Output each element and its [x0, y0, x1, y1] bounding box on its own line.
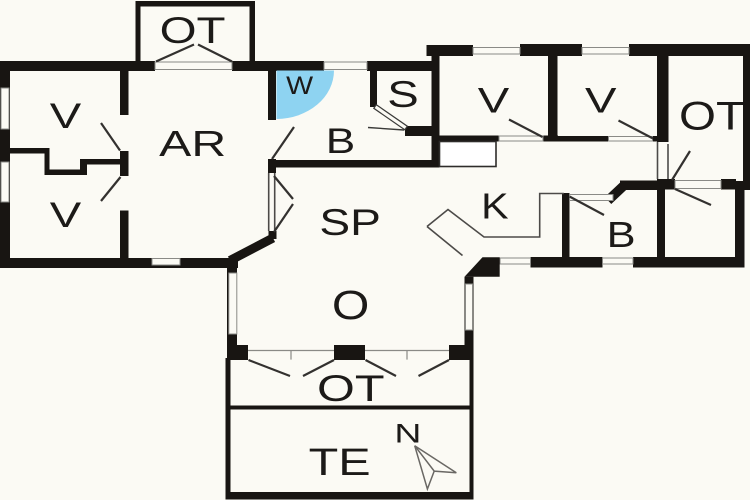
svg-text:K: K: [481, 186, 509, 227]
svg-text:B: B: [326, 122, 356, 161]
svg-text:S: S: [387, 74, 419, 115]
svg-text:AR: AR: [159, 123, 226, 164]
svg-text:OT: OT: [317, 367, 385, 409]
svg-text:V: V: [585, 82, 617, 121]
svg-text:O: O: [332, 282, 370, 328]
svg-text:W: W: [286, 72, 313, 100]
svg-text:V: V: [50, 196, 82, 235]
svg-text:V: V: [478, 82, 510, 121]
svg-text:N: N: [394, 418, 421, 448]
svg-text:SP: SP: [319, 202, 381, 243]
svg-text:B: B: [607, 214, 636, 255]
svg-text:OT: OT: [679, 95, 745, 139]
svg-text:TE: TE: [309, 442, 371, 484]
svg-text:V: V: [50, 97, 82, 136]
